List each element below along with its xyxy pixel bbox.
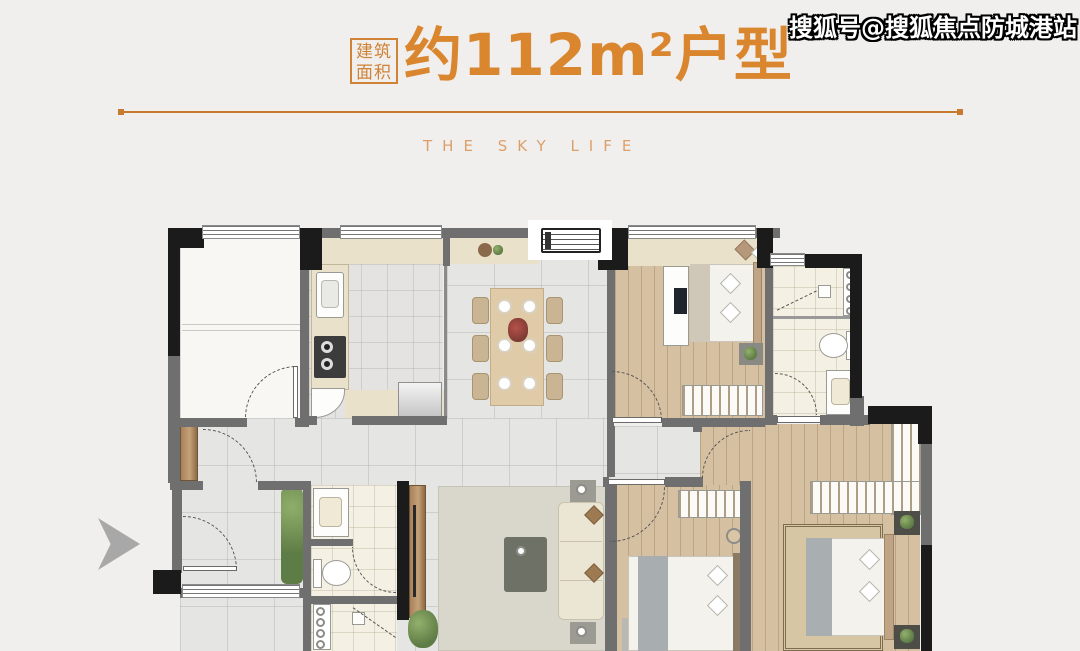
window xyxy=(628,225,756,239)
wall-segment xyxy=(740,481,751,651)
window xyxy=(340,225,442,239)
wall-pier xyxy=(168,246,180,356)
bedroom3-bed-blanket xyxy=(638,556,668,651)
hallway xyxy=(610,426,700,479)
wall-segment xyxy=(665,477,703,487)
stove-burner xyxy=(321,341,333,353)
dining-chair xyxy=(546,297,563,324)
fridge xyxy=(398,382,442,418)
nightstand-plant xyxy=(900,515,914,529)
bedroom2-bed-blanket xyxy=(690,264,710,342)
dining-chair xyxy=(472,335,489,362)
bedroom2-headboard xyxy=(753,262,762,344)
dining-sill-decor-bowl xyxy=(478,243,492,257)
plate xyxy=(497,299,512,314)
tv-cabinet xyxy=(409,485,426,618)
master-dresser xyxy=(810,481,921,514)
bathroom1-sink xyxy=(831,378,850,405)
wall-segment xyxy=(607,426,615,477)
shower-head xyxy=(818,285,831,298)
kitchen-sink-basin xyxy=(321,280,339,308)
bedroom2-tv xyxy=(674,288,687,314)
kitchen-sliding-door xyxy=(444,266,447,416)
wall-segment xyxy=(850,396,864,426)
ac-unit-fan xyxy=(545,232,551,249)
shower-partition xyxy=(773,316,850,319)
wall-segment xyxy=(305,416,317,425)
shoe-cabinet xyxy=(180,421,198,481)
dining-chair xyxy=(546,335,563,362)
nightstand-plant xyxy=(744,347,757,360)
toilet-tank xyxy=(313,559,322,588)
bedroom2-wardrobe xyxy=(682,385,763,416)
wall-pier xyxy=(850,256,862,398)
foyer-plants xyxy=(281,488,303,584)
washer-knob xyxy=(316,607,325,616)
wall-pier xyxy=(921,545,932,651)
window xyxy=(770,253,805,266)
wall-segment xyxy=(311,539,353,546)
entrance-arrow-icon xyxy=(98,518,140,570)
plate xyxy=(522,338,537,353)
master-bed-blanket xyxy=(806,538,832,636)
door-threshold xyxy=(777,416,821,423)
washer-knob xyxy=(316,640,325,649)
dining-chair xyxy=(472,373,489,400)
wall-segment xyxy=(352,416,447,425)
table-flowers xyxy=(508,318,528,342)
wall-segment xyxy=(172,481,182,573)
floor-plan xyxy=(0,0,1080,651)
wall-pier xyxy=(300,228,322,270)
wall-pier xyxy=(153,570,181,594)
wall-pier xyxy=(397,481,409,620)
wall-segment xyxy=(693,420,702,432)
plate xyxy=(522,299,537,314)
wall-pier xyxy=(918,406,932,444)
living-plant xyxy=(408,610,438,648)
wall-segment xyxy=(168,420,180,483)
plate xyxy=(497,376,512,391)
wall-pier xyxy=(168,228,204,248)
entry-window xyxy=(182,584,300,598)
bedroom3-dresser xyxy=(678,490,744,518)
wall-segment xyxy=(662,418,765,427)
coffee-table xyxy=(504,537,547,592)
flyer-page: 建筑 面积 约112m²户型 THE SKY LIFE 搜狐号@搜狐焦点防城港站 xyxy=(0,0,1080,651)
wall-segment xyxy=(765,415,777,425)
washer-knob xyxy=(316,629,325,638)
table-lamp xyxy=(576,626,587,637)
door-leaf xyxy=(608,479,665,485)
wall-segment xyxy=(443,238,450,266)
wall-segment xyxy=(921,438,932,545)
toilet-bowl xyxy=(322,560,351,586)
master-headboard xyxy=(884,534,894,640)
plate xyxy=(522,376,537,391)
wall-segment xyxy=(765,266,773,418)
bathroom2-sink xyxy=(319,497,342,527)
toilet-bowl xyxy=(819,333,848,358)
wall-segment xyxy=(311,596,399,604)
dining-chair xyxy=(546,373,563,400)
dining-sill-plant xyxy=(493,245,503,255)
window xyxy=(202,225,300,239)
wall-segment xyxy=(300,266,309,420)
dining-chair xyxy=(472,297,489,324)
sofa-cushion-seam xyxy=(560,541,602,542)
tv xyxy=(413,505,416,597)
utility-room-partition xyxy=(182,324,300,331)
washer-knob xyxy=(316,618,325,627)
plate xyxy=(497,338,512,353)
table-lamp xyxy=(576,484,587,495)
stove-burner xyxy=(321,358,333,370)
wall-segment xyxy=(170,418,247,427)
wall-segment xyxy=(303,481,311,651)
kitchen-window-sill xyxy=(307,238,447,266)
nightstand-plant xyxy=(900,629,914,643)
coffee-table-decor xyxy=(516,546,526,556)
